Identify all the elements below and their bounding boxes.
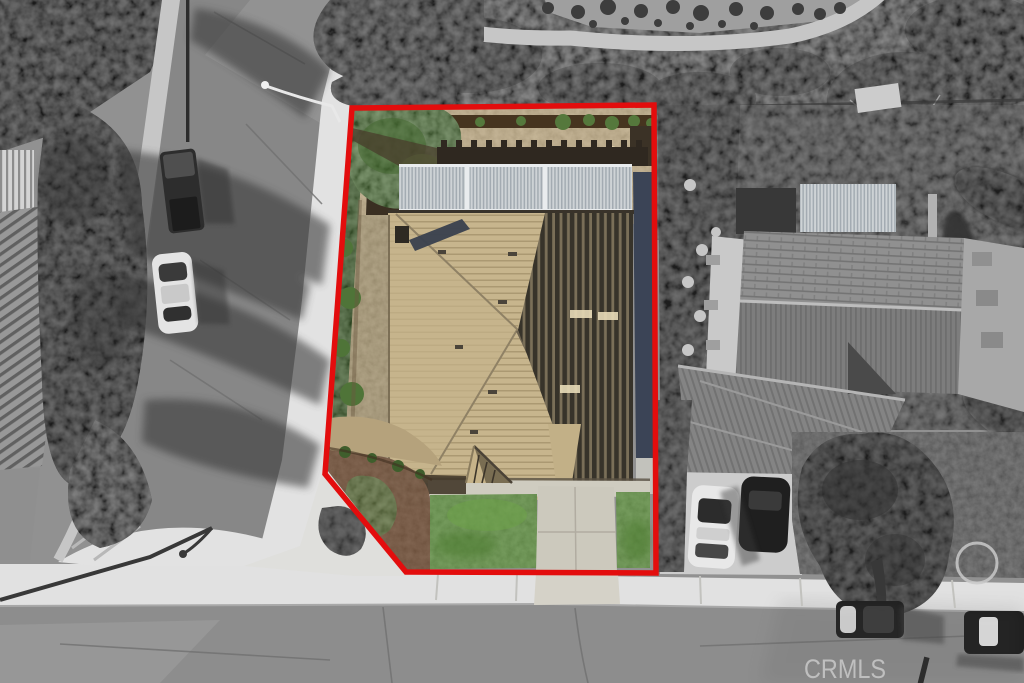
svg-text:CRMLS: CRMLS bbox=[804, 654, 886, 683]
